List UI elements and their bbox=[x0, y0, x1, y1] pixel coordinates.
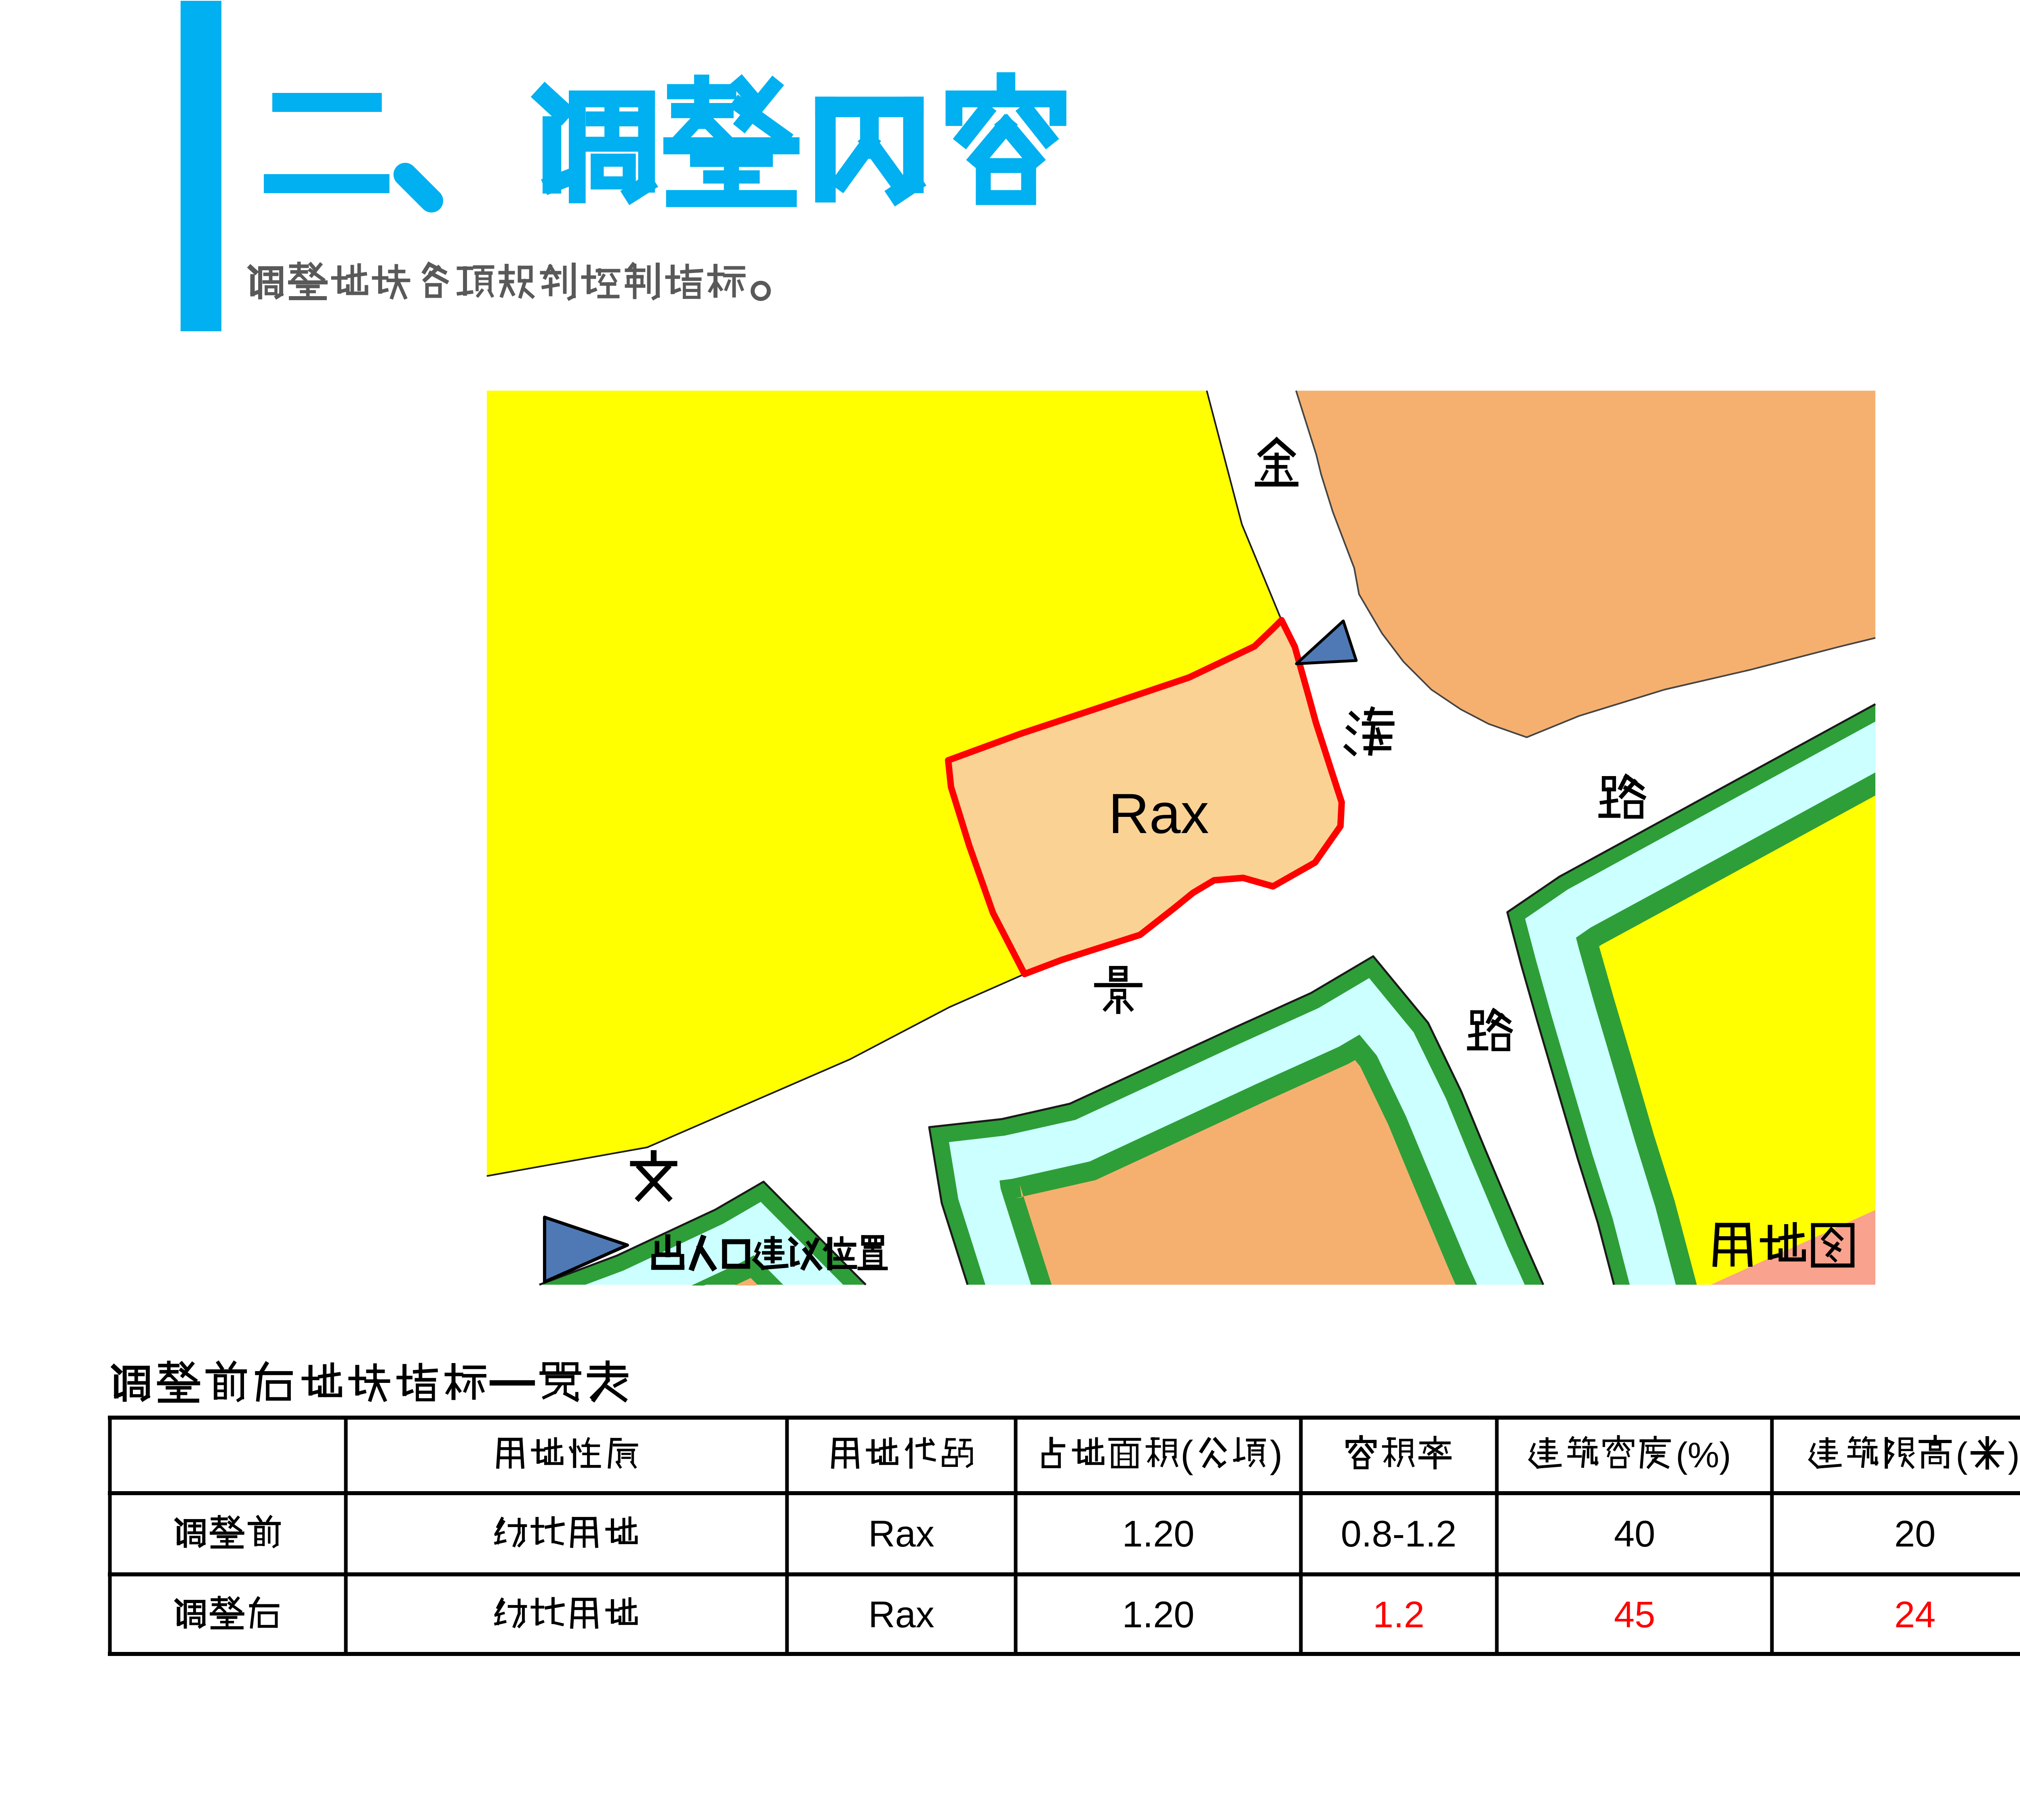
svg-text:): ) bbox=[1270, 1433, 1283, 1476]
svg-text:1.20: 1.20 bbox=[1122, 1513, 1194, 1555]
svg-text:(: ( bbox=[1180, 1433, 1193, 1476]
svg-text:(%): (%) bbox=[1676, 1435, 1731, 1475]
svg-text:Rax: Rax bbox=[868, 1513, 934, 1555]
svg-text:40: 40 bbox=[1614, 1513, 1655, 1555]
svg-text:Rax: Rax bbox=[1109, 782, 1209, 845]
svg-text:(: ( bbox=[1956, 1435, 1967, 1475]
svg-text:1.20: 1.20 bbox=[1122, 1594, 1194, 1635]
svg-text:45: 45 bbox=[1614, 1594, 1655, 1635]
svg-text:20: 20 bbox=[1894, 1513, 1936, 1555]
svg-text:Rax: Rax bbox=[868, 1594, 934, 1635]
svg-text:0.8-1.2: 0.8-1.2 bbox=[1341, 1513, 1456, 1555]
svg-text:24: 24 bbox=[1894, 1594, 1936, 1635]
svg-text:1.2: 1.2 bbox=[1373, 1594, 1425, 1635]
svg-text:): ) bbox=[2008, 1435, 2020, 1475]
